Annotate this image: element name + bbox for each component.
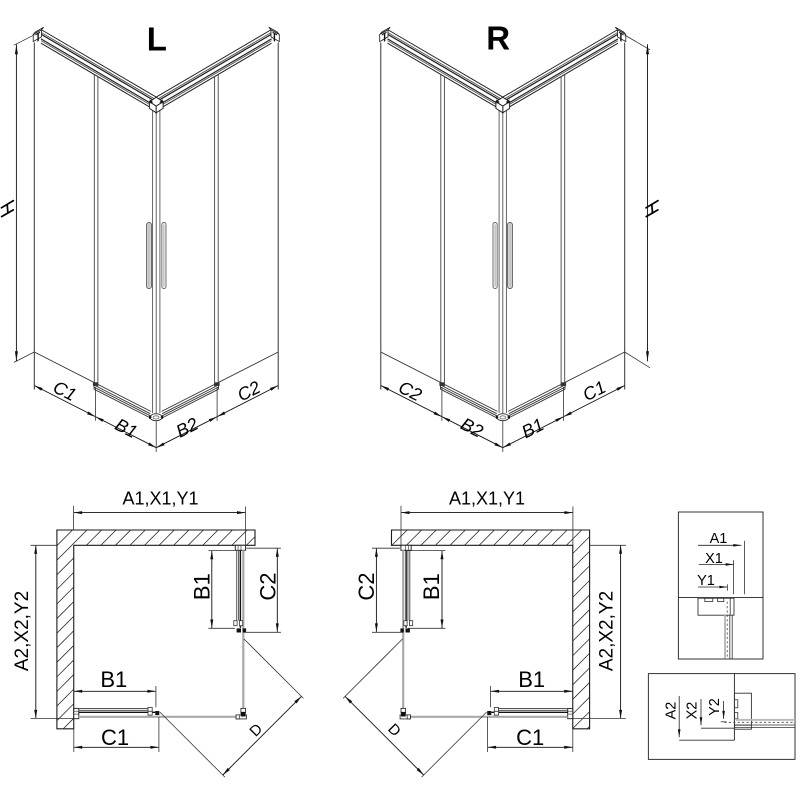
- svg-text:A2: A2: [664, 702, 680, 720]
- svg-text:C1: C1: [516, 725, 544, 750]
- svg-text:A1,X1,Y1: A1,X1,Y1: [122, 489, 198, 509]
- svg-text:L: L: [147, 20, 167, 57]
- svg-text:A2,X2,Y2: A2,X2,Y2: [12, 591, 33, 671]
- svg-text:B1: B1: [189, 573, 214, 600]
- svg-text:A1,X1,Y1: A1,X1,Y1: [449, 489, 525, 509]
- svg-text:Y2: Y2: [707, 698, 723, 716]
- svg-text:R: R: [486, 19, 510, 56]
- svg-text:B1: B1: [518, 667, 545, 692]
- svg-text:X2: X2: [685, 702, 701, 720]
- svg-text:B1: B1: [419, 573, 444, 600]
- svg-text:C2: C2: [354, 573, 379, 601]
- svg-text:A2,X2,Y2: A2,X2,Y2: [597, 591, 618, 671]
- svg-text:C2: C2: [255, 573, 280, 601]
- svg-text:B1: B1: [100, 667, 127, 692]
- svg-text:C1: C1: [101, 725, 129, 750]
- svg-text:A1: A1: [710, 531, 728, 547]
